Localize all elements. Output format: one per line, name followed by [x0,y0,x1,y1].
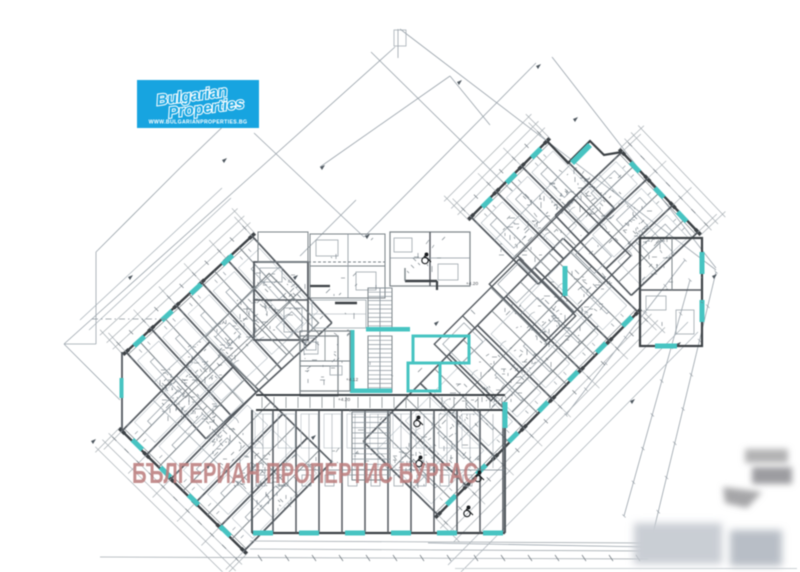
svg-text:+4.20: +4.20 [466,281,478,287]
svg-text:WWW.BULGARIANPROPERTIES.BG: WWW.BULGARIANPROPERTIES.BG [149,120,248,126]
svg-text:+4.20: +4.20 [338,397,350,403]
svg-text:БЪЛГЕРИАН ПРОПЕРТИС БУРГАС: БЪЛГЕРИАН ПРОПЕРТИС БУРГАС [132,458,478,490]
svg-text:+4.12: +4.12 [346,377,358,383]
